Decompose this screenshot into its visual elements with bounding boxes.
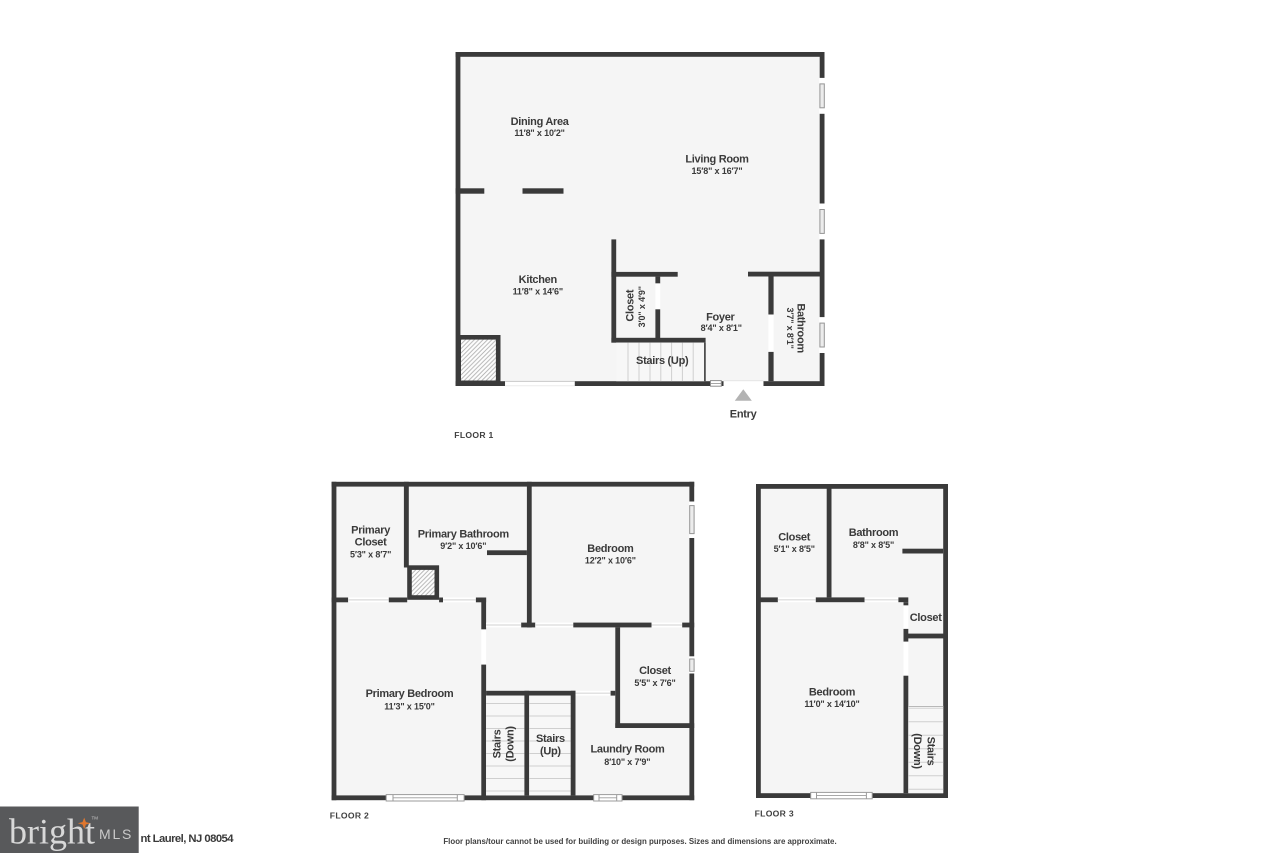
svg-text:Closet: Closet [624, 289, 636, 321]
svg-text:Primary: Primary [351, 525, 391, 537]
svg-text:Bedroom: Bedroom [587, 543, 634, 555]
svg-text:Laundry Room: Laundry Room [590, 744, 665, 756]
svg-text:Foyer: Foyer [706, 311, 735, 323]
svg-text:Bedroom: Bedroom [809, 686, 856, 698]
svg-text:8′4" x 8′1": 8′4" x 8′1" [701, 323, 742, 333]
svg-text:Entry: Entry [730, 408, 758, 420]
svg-text:Stairs: Stairs [925, 737, 937, 766]
svg-text:15′8" x 16′7": 15′8" x 16′7" [692, 166, 743, 176]
svg-text:Primary Bedroom: Primary Bedroom [366, 688, 454, 700]
svg-text:nt Laurel, NJ 08054: nt Laurel, NJ 08054 [141, 833, 235, 845]
svg-text:11′8" x 10′2": 11′8" x 10′2" [514, 128, 564, 138]
svg-text:(Down): (Down) [911, 733, 923, 769]
svg-text:Closet: Closet [910, 612, 942, 624]
svg-text:FLOOR 1: FLOOR 1 [454, 430, 493, 440]
svg-text:5′3" x 8′7": 5′3" x 8′7" [350, 550, 391, 560]
svg-text:bright: bright [9, 812, 95, 852]
svg-text:MLS: MLS [99, 826, 133, 842]
svg-text:3′0" x 4′9": 3′0" x 4′9" [637, 286, 647, 327]
svg-text:Living Room: Living Room [685, 153, 749, 165]
svg-text:Closet: Closet [355, 537, 387, 549]
svg-text:FLOOR 2: FLOOR 2 [330, 810, 369, 820]
svg-text:Closet: Closet [778, 532, 810, 544]
svg-text:Closet: Closet [639, 665, 671, 677]
svg-text:9′2" x 10′6": 9′2" x 10′6" [440, 541, 486, 551]
svg-text:3′7" x 8′1": 3′7" x 8′1" [785, 307, 795, 348]
svg-text:5′1" x 8′5": 5′1" x 8′5" [774, 544, 815, 554]
svg-text:Kitchen: Kitchen [519, 274, 558, 286]
svg-text:(Up): (Up) [540, 746, 561, 758]
svg-text:Bathroom: Bathroom [849, 527, 899, 539]
svg-text:12′2" x 10′6": 12′2" x 10′6" [585, 556, 636, 566]
svg-text:Bathroom: Bathroom [795, 303, 807, 353]
svg-text:8′10" x 7′9": 8′10" x 7′9" [604, 757, 650, 767]
svg-text:TM: TM [92, 816, 99, 821]
svg-text:Stairs: Stairs [536, 733, 565, 745]
svg-text:11′0" x 14′10": 11′0" x 14′10" [804, 699, 859, 709]
svg-text:11′8" x 14′6": 11′8" x 14′6" [513, 287, 563, 297]
svg-text:Primary Bathroom: Primary Bathroom [418, 528, 510, 540]
svg-text:Stairs (Up): Stairs (Up) [636, 355, 689, 367]
svg-text:5′5" x 7′6": 5′5" x 7′6" [634, 678, 675, 688]
svg-text:Dining Area: Dining Area [511, 116, 570, 128]
svg-text:Stairs: Stairs [491, 729, 503, 758]
svg-text:FLOOR 3: FLOOR 3 [755, 809, 794, 819]
svg-text:8′8" x 8′5": 8′8" x 8′5" [853, 540, 894, 550]
svg-text:(Down): (Down) [504, 726, 516, 762]
svg-text:11′3" x 15′0": 11′3" x 15′0" [384, 701, 434, 711]
svg-text:Floor plans/tour cannot be use: Floor plans/tour cannot be used for buil… [443, 837, 836, 846]
